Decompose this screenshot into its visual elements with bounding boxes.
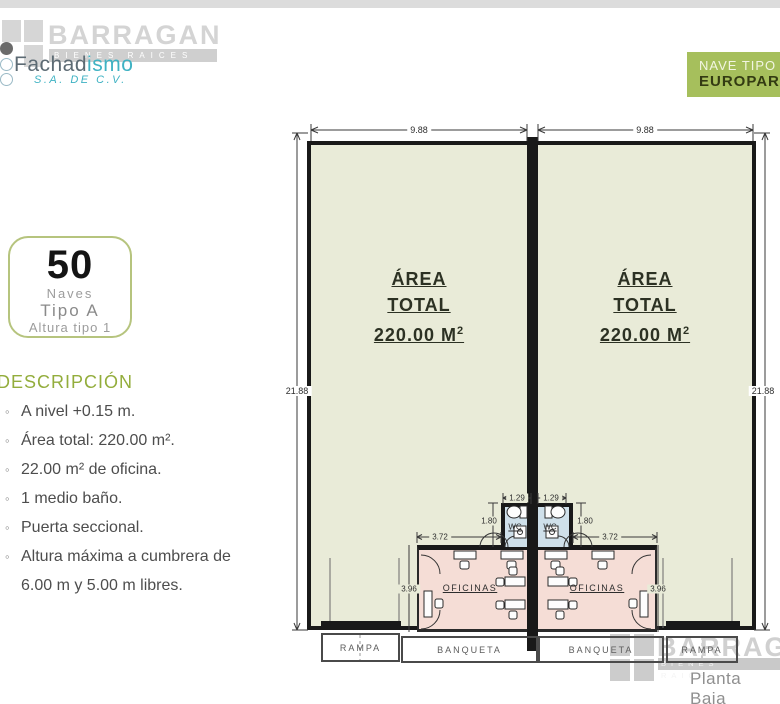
fachadismo-ring-icon — [0, 73, 13, 86]
fachadismo-text-teal: ismo — [87, 53, 133, 76]
area-line1: ÁREA — [339, 266, 499, 292]
wc-label: WC — [508, 523, 521, 532]
description-item: 1 medio baño. — [0, 484, 255, 513]
dim-unit-width-right: 9.88 — [633, 125, 657, 135]
fachadismo-subtitle: S.A. DE C.V. — [34, 74, 127, 86]
area-line1: ÁREA — [565, 266, 725, 292]
area-total-label: ÁREA TOTAL 220.00 M2 — [339, 266, 499, 348]
barragan-grid-icon — [2, 20, 21, 42]
area-line2: TOTAL — [565, 292, 725, 318]
banqueta-label: BANQUETA — [569, 645, 634, 655]
rampa-box: RAMPA — [666, 636, 738, 663]
dim-office-depth-left: 3.96 — [398, 585, 420, 594]
description-item: Área total: 220.00 m². — [0, 426, 255, 455]
dim-wc-depth-left: 1.80 — [478, 517, 500, 526]
fachadismo-ring-icon — [0, 58, 13, 71]
fachadismo-dot-icon — [0, 42, 13, 55]
dim-unit-width-left: 9.88 — [407, 125, 431, 135]
units-badge: 50 Naves Tipo A Altura tipo 1 — [8, 236, 132, 338]
brochure-page: BARRAGAN BIENES RAICES Fachadismo S.A. D… — [0, 0, 780, 704]
barragan-logo-text: BARRAGAN — [48, 20, 222, 51]
dim-office-depth-right: 3.96 — [647, 585, 669, 594]
units-caption: Naves — [10, 286, 130, 301]
dim-wc-width-left: 1.29 — [506, 494, 528, 503]
project-tag-type: NAVE TIPO — [699, 58, 780, 73]
dim-office-width-left: 3.72 — [429, 533, 451, 542]
description-section: DESCRIPCIÓN A nivel +0.15 m. Área total:… — [0, 372, 255, 600]
barragan-grid-icon — [24, 20, 43, 42]
rampa-label: RAMPA — [681, 645, 722, 655]
description-list: A nivel +0.15 m. Área total: 220.00 m². … — [0, 397, 255, 600]
dim-wc-width-right: 1.29 — [540, 494, 562, 503]
oficinas-label: OFICINAS — [570, 583, 625, 593]
dim-unit-depth-left: 21.88 — [283, 386, 312, 396]
top-divider-bar — [0, 0, 780, 8]
rampa-label: RAMPA — [340, 643, 381, 653]
description-item: 22.00 m² de oficina. — [0, 455, 255, 484]
description-item: Altura máxima a cumbrera de 6.00 m y 5.0… — [0, 542, 255, 600]
dim-unit-depth-right: 21.88 — [749, 386, 778, 396]
area-total-label: ÁREA TOTAL 220.00 M2 — [565, 266, 725, 348]
rampa-box: RAMPA — [321, 633, 400, 662]
area-value: 220.00 M2 — [565, 318, 725, 348]
units-type: Tipo A — [10, 301, 130, 320]
dim-wc-depth-right: 1.80 — [574, 517, 596, 526]
description-item: Puerta seccional. — [0, 513, 255, 542]
project-tag-name: EUROPARK — [699, 73, 780, 90]
units-count: 50 — [10, 244, 130, 286]
fachadismo-text-gray: Fachad — [14, 53, 87, 76]
area-value: 220.00 M2 — [339, 318, 499, 348]
units-height-type: Altura tipo 1 — [10, 320, 130, 335]
description-item: A nivel +0.15 m. — [0, 397, 255, 426]
area-line2: TOTAL — [339, 292, 499, 318]
banqueta-label: BANQUETA — [437, 645, 502, 655]
plan-caption: Planta Baja — [690, 669, 780, 704]
dim-office-width-right: 3.72 — [599, 533, 621, 542]
oficinas-label: OFICINAS — [443, 583, 498, 593]
project-tag: NAVE TIPO EUROPARK — [687, 52, 780, 97]
wc-label: WC — [543, 523, 556, 532]
banqueta-box: BANQUETA — [538, 636, 664, 663]
description-title: DESCRIPCIÓN — [0, 372, 255, 393]
dividing-wall — [527, 137, 538, 651]
banqueta-box: BANQUETA — [401, 636, 538, 663]
